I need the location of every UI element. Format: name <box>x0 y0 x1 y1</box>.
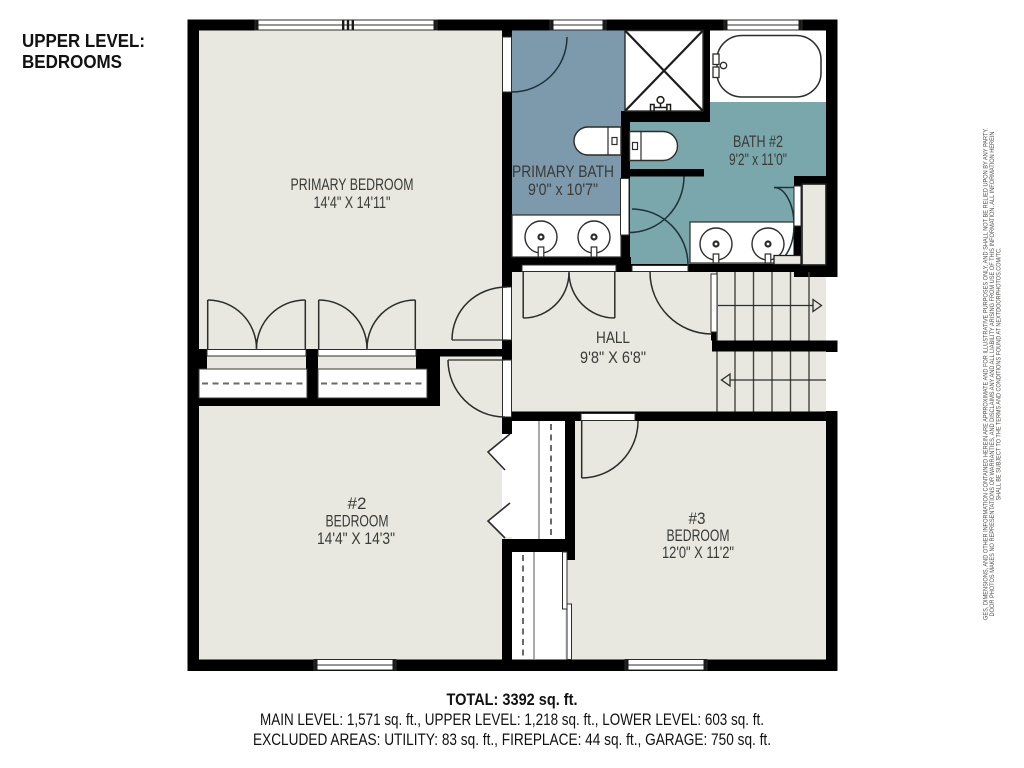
svg-text:BEDROOMS: BEDROOMS <box>22 51 122 72</box>
svg-text:BATH #2: BATH #2 <box>733 133 783 151</box>
svg-text:PRIMARY BATH: PRIMARY BATH <box>512 163 614 181</box>
svg-text:14'4" X 14'3": 14'4" X 14'3" <box>317 530 395 548</box>
svg-text:TOTAL: 3392 sq. ft.: TOTAL: 3392 sq. ft. <box>447 691 578 709</box>
svg-text:BEDROOM: BEDROOM <box>326 513 389 531</box>
svg-text:EXCLUDED AREAS: UTILITY: 83 sq: EXCLUDED AREAS: UTILITY: 83 sq. ft., FIR… <box>253 731 771 749</box>
svg-text:HALL: HALL <box>596 329 630 347</box>
svg-text:14'4" X 14'11": 14'4" X 14'11" <box>314 194 391 212</box>
svg-text:MAIN LEVEL: 1,571 sq. ft., UPP: MAIN LEVEL: 1,571 sq. ft., UPPER LEVEL: … <box>260 711 764 729</box>
svg-text:9'8" X 6'8": 9'8" X 6'8" <box>580 349 646 367</box>
svg-text:UPPER LEVEL:: UPPER LEVEL: <box>22 30 145 51</box>
svg-text:#2: #2 <box>348 495 367 513</box>
svg-text:9'0" x 10'7": 9'0" x 10'7" <box>528 181 598 199</box>
svg-text:BEDROOM: BEDROOM <box>667 527 730 545</box>
svg-text:DOOR PHOTOS MAKES NO REPRESENT: DOOR PHOTOS MAKES NO REPRESENTATIONS OR … <box>990 132 996 617</box>
svg-text:PRIMARY BEDROOM: PRIMARY BEDROOM <box>291 176 414 194</box>
svg-text:#3: #3 <box>689 510 706 528</box>
svg-text:12'0" X 11'2": 12'0" X 11'2" <box>662 544 734 562</box>
svg-text:SHALL BE SUBJECT TO THE TERMS: SHALL BE SUBJECT TO THE TERMS AND CONDIT… <box>997 247 1003 500</box>
svg-text:9'2" x 11'0": 9'2" x 11'0" <box>729 151 787 169</box>
svg-text:GES, DIMENSIONS, AND OTHER INF: GES, DIMENSIONS, AND OTHER INFORMATION C… <box>984 128 990 620</box>
